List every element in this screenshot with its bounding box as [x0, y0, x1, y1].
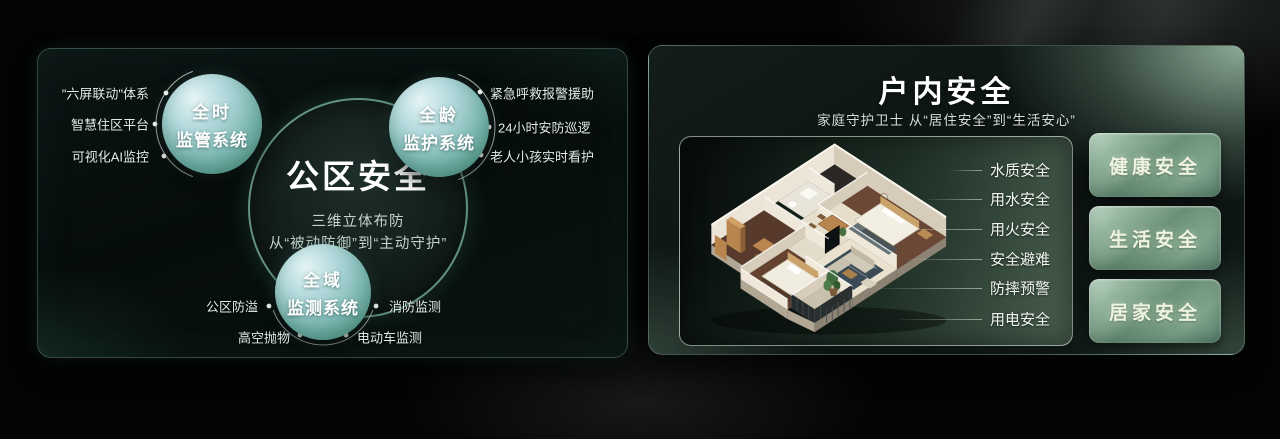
tag-falling-objects: 高空抛物	[238, 328, 290, 347]
tag-visual-ai-monitor: 可视化AI监控	[72, 147, 149, 166]
label-water-use: 用水安全	[990, 189, 1050, 210]
node-label-line2: 监护系统	[403, 129, 475, 154]
tag-ebike-monitoring: 电动车监测	[357, 328, 422, 347]
node-label-line1: 全域	[303, 266, 343, 291]
tag-fire-monitoring: 消防监测	[389, 297, 441, 316]
tag-six-screen-linkage: "六屏联动"体系	[62, 84, 149, 103]
indoor-subtitle: 家庭守护卫士 从“居住安全”到“生活安心”	[649, 109, 1244, 129]
floorplan-panel: 水质安全 用水安全 用火安全 安全避难 防摔预警 用电安全	[679, 136, 1073, 346]
node-label-line1: 全龄	[419, 101, 459, 126]
node-label-line2: 监管系统	[176, 126, 248, 151]
node-label-line1: 全时	[192, 98, 232, 123]
tag-elderly-child-care: 老人小孩实时看护	[490, 147, 594, 166]
tag-emergency-call: 紧急呼救报警援助	[490, 84, 594, 103]
hub-desc-line1: 三维立体布防	[269, 211, 447, 233]
connector-line	[928, 199, 982, 200]
node-all-domain-monitoring: 全域 监测系统	[275, 244, 371, 340]
hub-description: 三维立体布防 从“被动防御”到“主动守护”	[269, 211, 447, 255]
tag-smart-community: 智慧住区平台	[71, 115, 149, 134]
life-safety-button[interactable]: 生活安全	[1089, 206, 1221, 270]
node-all-time-supervision: 全时 监管系统	[162, 74, 262, 174]
tag-24h-patrol: 24小时安防巡逻	[498, 118, 590, 137]
label-electricity-safety: 用电安全	[990, 309, 1050, 330]
node-all-age-guardianship: 全龄 监护系统	[389, 77, 489, 177]
health-safety-button[interactable]: 健康安全	[1089, 133, 1221, 197]
connector-line	[952, 170, 982, 171]
connector-line	[906, 259, 982, 260]
home-safety-button[interactable]: 居家安全	[1089, 279, 1221, 343]
label-water-quality: 水质安全	[990, 160, 1050, 181]
public-area-security-card: 公区安全 三维立体布防 从“被动防御”到“主动守护” 全时 监管系统 全龄	[37, 48, 628, 358]
label-fall-warning: 防摔预警	[990, 278, 1050, 299]
indoor-title: 户内安全	[649, 67, 1244, 111]
connector-line	[876, 229, 982, 230]
connector-line	[900, 319, 982, 320]
label-safe-refuge: 安全避难	[990, 249, 1050, 270]
node-label-line2: 监测系统	[287, 294, 359, 319]
indoor-security-card: 户内安全 家庭守护卫士 从“居住安全”到“生活安心”	[648, 45, 1245, 355]
slide: 公区安全 三维立体布防 从“被动防御”到“主动守护” 全时 监管系统 全龄	[0, 0, 1280, 439]
floorplan-image	[682, 143, 952, 339]
connector-line	[878, 288, 982, 289]
tag-overflow-prevention: 公区防溢	[206, 297, 258, 316]
label-fire-use: 用火安全	[990, 219, 1050, 240]
